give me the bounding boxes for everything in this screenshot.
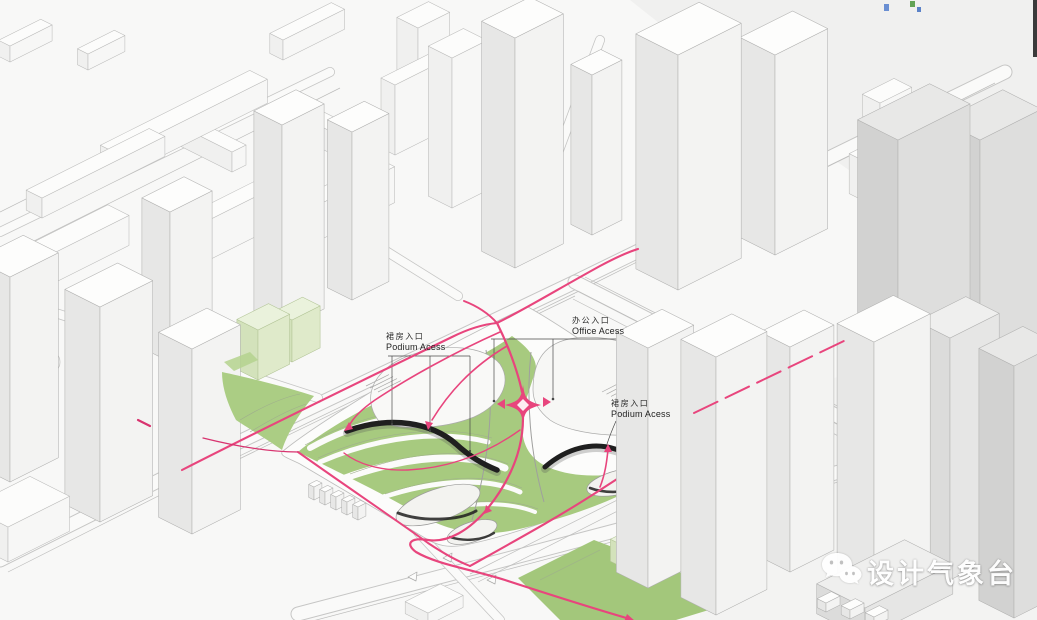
office-access-zh: 办公入口 [572,315,624,326]
podium-access-right-zh: 裙房入口 [611,398,670,409]
watermark-text: 设计气象台 [867,552,1017,591]
label-office-access: 办公入口 Office Acess [572,315,624,337]
watermark: 设计气象台 [820,551,1017,591]
podium-access-left-zh: 裙房入口 [386,331,445,342]
screenshot-root: 裙房入口 Podium Acess 办公入口 Office Acess 裙房入口… [0,0,1037,620]
podium-access-left-en: Podium Acess [386,342,445,353]
office-access-en: Office Acess [572,326,624,337]
podium-access-right-en: Podium Acess [611,409,670,420]
wechat-icon [820,551,862,591]
axonometric-city-drawing [0,0,1037,620]
label-podium-access-left: 裙房入口 Podium Acess [386,331,445,353]
label-podium-access-right: 裙房入口 Podium Acess [611,398,670,420]
